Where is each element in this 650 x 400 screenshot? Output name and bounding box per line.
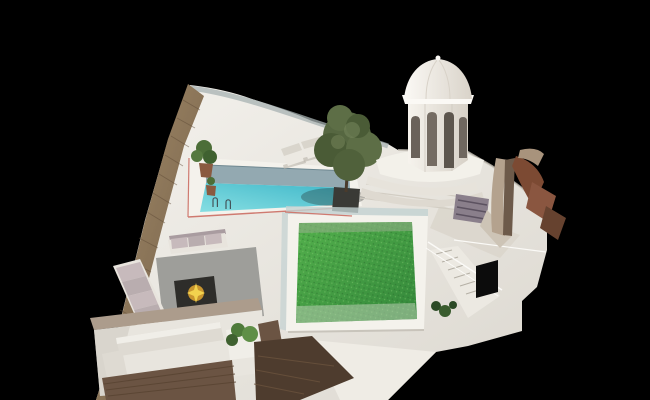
- stair-plant: [439, 305, 451, 317]
- tree-canopy-highlight: [344, 122, 360, 138]
- plant-foliage: [203, 150, 217, 164]
- tower-arch: [444, 112, 454, 168]
- tree-canopy-highlight: [331, 135, 345, 149]
- terracotta-pot-small: [206, 185, 216, 196]
- tree-canopy: [333, 149, 365, 181]
- sofa-cushion: [205, 233, 222, 245]
- dome-finial: [436, 56, 441, 61]
- doorway: [476, 260, 498, 298]
- tower-arch: [427, 112, 437, 166]
- green-roof-lawn: [280, 206, 428, 332]
- tower-arch: [411, 116, 420, 158]
- architectural-render: [0, 0, 650, 400]
- shrub: [242, 326, 258, 342]
- terracotta-pot: [199, 163, 213, 178]
- stair-plant: [449, 301, 457, 309]
- sofa-cushion: [171, 237, 188, 249]
- shrub: [226, 334, 238, 346]
- tower-arch: [459, 117, 467, 158]
- plant-foliage: [207, 177, 215, 185]
- sofa-cushion: [188, 235, 205, 247]
- plant-foliage: [191, 150, 203, 162]
- render-stage: [0, 0, 650, 400]
